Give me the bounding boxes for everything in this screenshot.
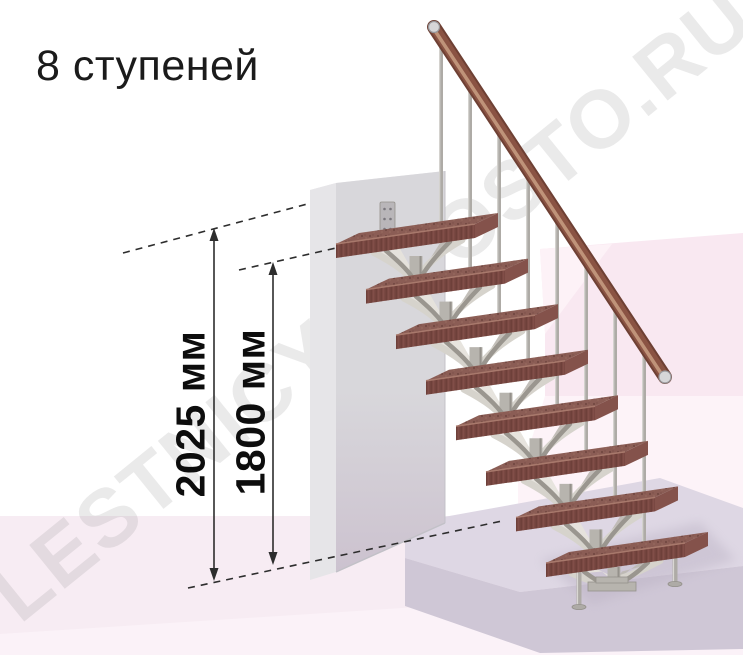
staircase-figure: LESTNICY-PROSTO.RU <box>0 0 743 655</box>
dimension-label-total-height: 2025 мм <box>168 331 215 498</box>
dimension-label-top-step-height: 1800 мм <box>228 329 275 496</box>
diagram-canvas: LESTNICY-PROSTO.RU 8 ступеней 2025 мм 18… <box>0 0 743 655</box>
page-title: 8 ступеней <box>36 42 259 91</box>
